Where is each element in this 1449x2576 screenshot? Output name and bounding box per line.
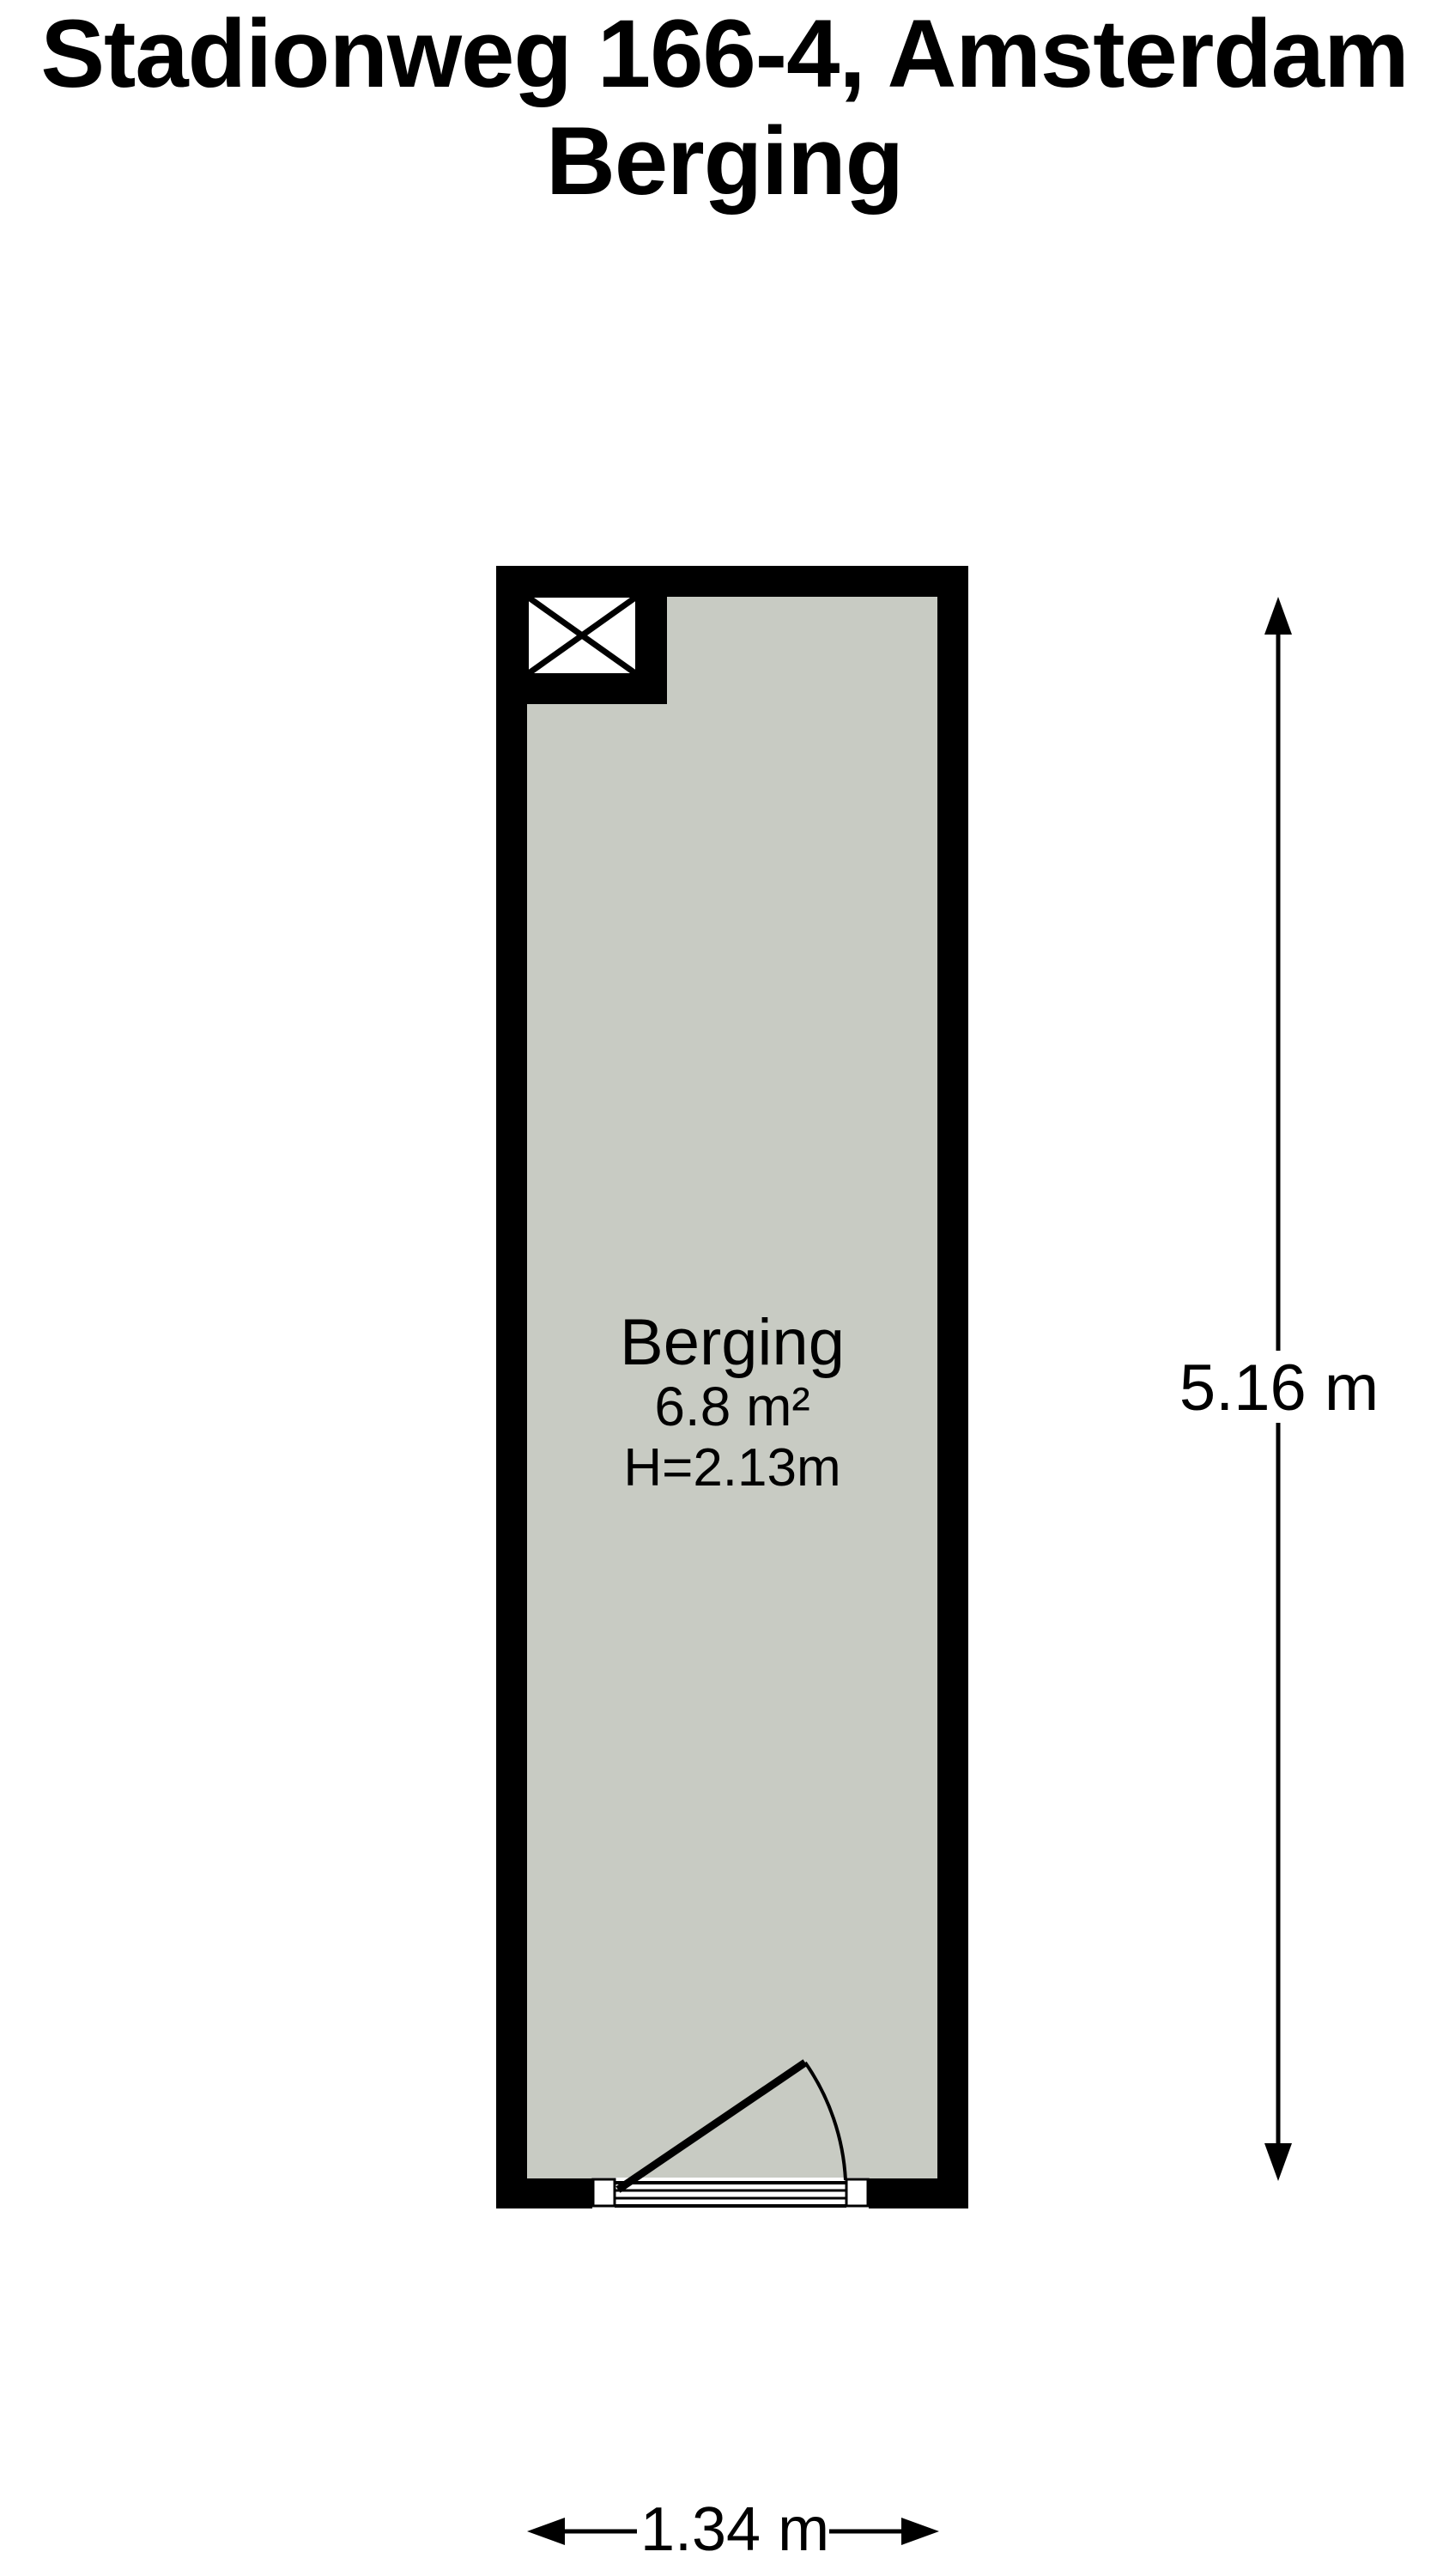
plan-overlay — [0, 0, 1449, 2576]
door-leaf — [618, 2063, 805, 2190]
vertical-dimension-label: 5.16 m — [1107, 1354, 1449, 1423]
door-arc — [805, 2063, 846, 2180]
door-jamb-left — [593, 2179, 615, 2206]
horizontal-dimension-label: 1.34 m — [563, 2497, 906, 2562]
door-jamb-right — [846, 2179, 868, 2206]
room-ceiling-height-label: H=2.13m — [496, 1441, 968, 1496]
door-swing-arc — [618, 2063, 846, 2190]
vdim-arrowhead-up — [1264, 597, 1292, 635]
room-area-label: 6.8 m² — [496, 1378, 968, 1435]
room-name-label: Berging — [496, 1309, 968, 1377]
vdim-arrowhead-down — [1264, 2143, 1292, 2181]
hdim-arrowhead-left — [527, 2518, 565, 2545]
hdim-arrowhead-right — [901, 2518, 939, 2545]
floorplan-page: Stadionweg 166-4, Amsterdam Berging — [0, 0, 1449, 2576]
